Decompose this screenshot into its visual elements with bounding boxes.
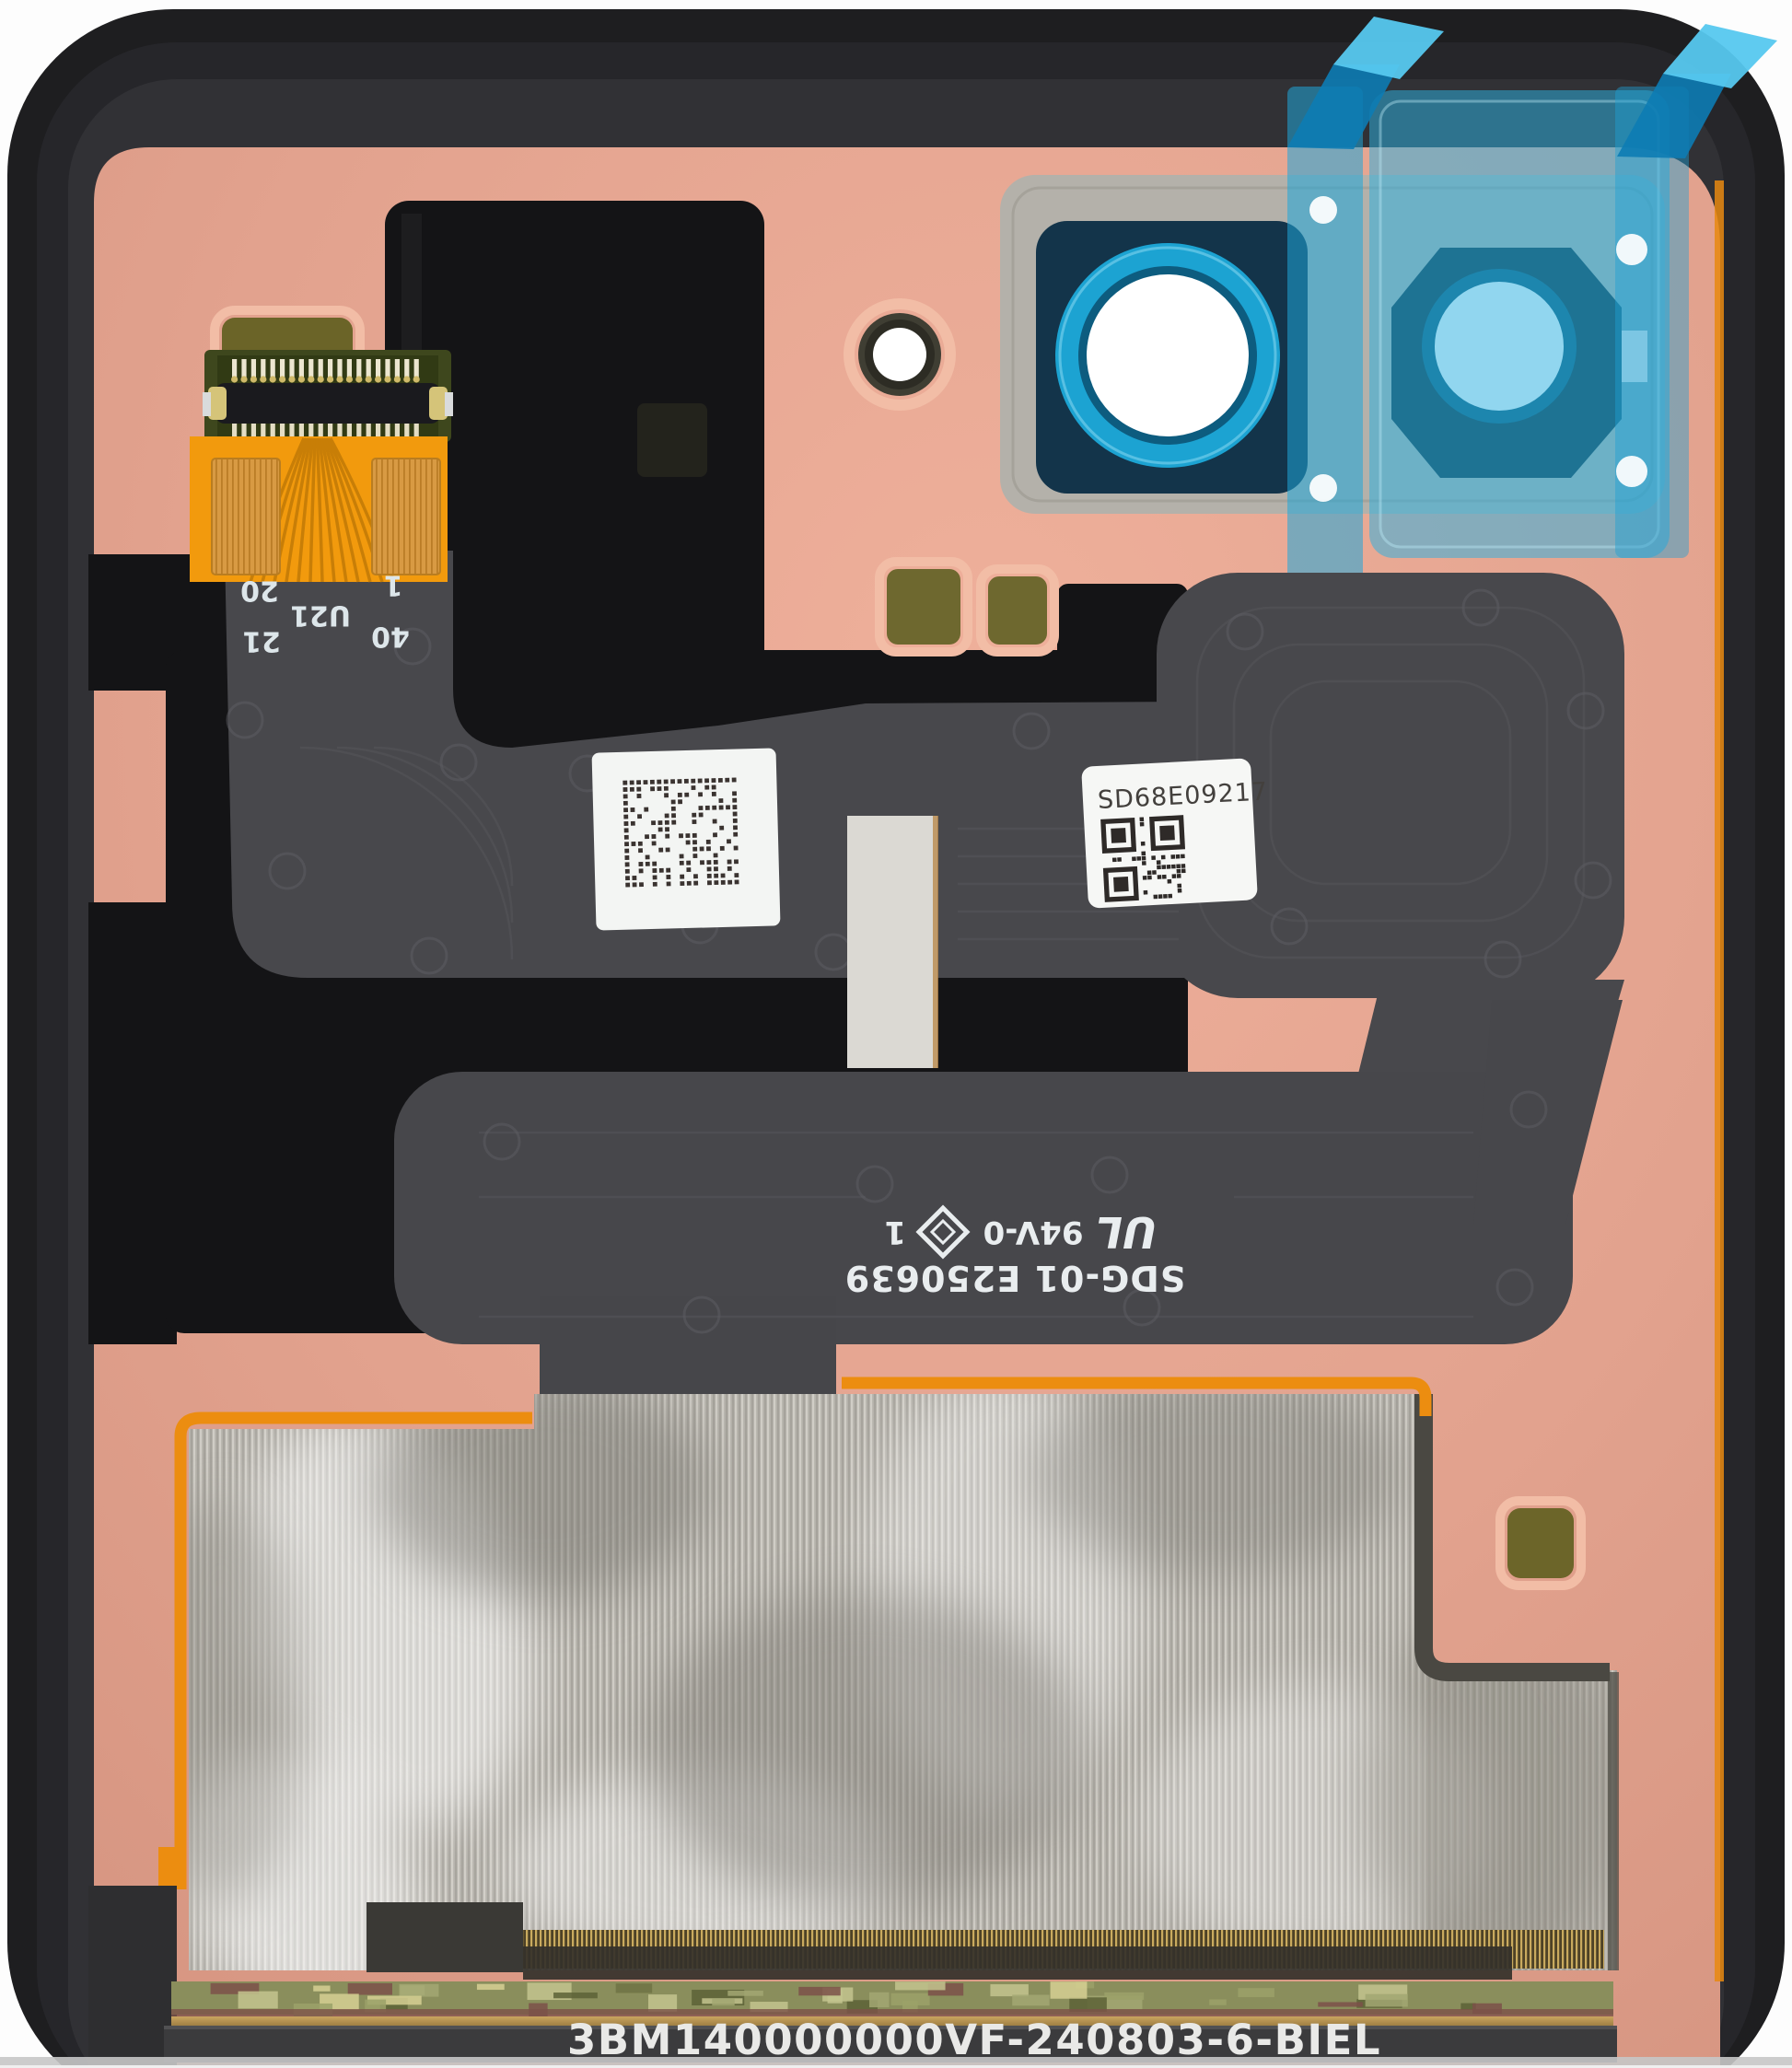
- dm-module: [684, 779, 689, 784]
- dm-module: [720, 846, 725, 851]
- dm-module: [685, 833, 690, 838]
- qr-module: [1132, 856, 1136, 861]
- mottle-chip: [798, 1987, 840, 1995]
- dm-module: [625, 862, 630, 866]
- dm-module: [650, 786, 655, 791]
- mottle-chip: [648, 1994, 677, 2012]
- qr-module: [1142, 856, 1146, 861]
- dm-module: [678, 799, 682, 804]
- dm-module: [623, 821, 628, 826]
- pin-bump: [413, 376, 420, 382]
- qr-module: [1117, 857, 1122, 862]
- qr-module: [1139, 817, 1144, 821]
- dm-module: [631, 821, 635, 826]
- pin-bump: [260, 376, 266, 382]
- fpc-edge-line: [1715, 180, 1724, 1981]
- pin-bump: [270, 376, 276, 382]
- qr-module: [1171, 865, 1176, 869]
- qr-module: [1181, 864, 1186, 868]
- qr-module: [1147, 876, 1152, 880]
- pin: [261, 359, 265, 378]
- flex-part-number: SDG-01 E250639: [844, 1258, 1186, 1298]
- dm-module: [678, 779, 682, 784]
- pin-bump: [327, 376, 333, 382]
- dm-module: [706, 860, 711, 865]
- qr-module: [1168, 879, 1172, 884]
- dm-module: [664, 779, 669, 784]
- dm-module: [636, 787, 641, 792]
- adhesive-pad: [981, 569, 1054, 652]
- dm-module: [653, 882, 657, 887]
- qr-module: [1157, 866, 1161, 870]
- dm-module: [650, 780, 655, 784]
- mottle-chip: [477, 1984, 505, 1990]
- pin: [347, 422, 352, 436]
- ul-logo-icon: UL: [1096, 1207, 1158, 1257]
- pin: [337, 359, 342, 378]
- dm-module: [636, 780, 641, 784]
- dm-module: [727, 866, 732, 871]
- dm-module: [691, 785, 695, 790]
- qr-module: [1147, 870, 1152, 875]
- pin: [385, 359, 390, 378]
- dm-module: [630, 807, 634, 812]
- dm-module: [726, 805, 730, 809]
- adhesive-pad: [1500, 1501, 1581, 1586]
- dm-module: [664, 786, 669, 791]
- pin: [232, 359, 237, 378]
- qr-module: [1177, 884, 1181, 889]
- qr-module: [1142, 861, 1146, 866]
- dm-module: [732, 805, 737, 809]
- dm-module: [630, 780, 634, 784]
- mottle-chip: [553, 1992, 598, 1998]
- qr-module: [1172, 874, 1177, 878]
- qr-module: [1143, 876, 1147, 880]
- dm-module: [652, 862, 657, 866]
- pin: [251, 422, 256, 436]
- dm-module: [707, 880, 712, 885]
- dm-module: [698, 779, 703, 784]
- dm-module: [711, 778, 716, 783]
- qr-module: [1170, 854, 1175, 859]
- dm-module: [692, 813, 696, 818]
- pin: [251, 359, 256, 378]
- dm-module: [721, 874, 726, 878]
- dm-module: [638, 848, 643, 853]
- dm-module: [630, 787, 634, 792]
- mottle-chip: [313, 1986, 330, 1992]
- dm-module: [734, 859, 739, 864]
- pin: [271, 422, 275, 436]
- pin: [299, 422, 304, 436]
- dm-module: [680, 875, 684, 879]
- pin: [414, 359, 419, 378]
- qr-module: [1161, 855, 1166, 860]
- adhesive-pad: [879, 562, 968, 652]
- pin: [308, 422, 313, 436]
- dm-module: [671, 820, 676, 825]
- qr-module: [1176, 864, 1181, 868]
- dm-module: [692, 833, 697, 838]
- dm-module: [713, 819, 717, 824]
- pin-bump: [336, 376, 343, 382]
- dm-module: [658, 827, 663, 831]
- dm-module: [680, 861, 684, 866]
- pin: [385, 422, 390, 436]
- pin: [232, 422, 237, 436]
- pin: [289, 359, 294, 378]
- pin-label-40: 40: [371, 621, 410, 653]
- qr-module: [1177, 874, 1181, 878]
- photo-canvas: SD68E09217 SDG-01 E250639 UL 94V-0 1 20 …: [0, 0, 1792, 2068]
- pin: [319, 359, 323, 378]
- connector-socket: [215, 383, 440, 424]
- dm-module: [646, 854, 650, 859]
- dm-module: [667, 881, 671, 886]
- qr-module: [1168, 894, 1172, 899]
- mottle-chip: [727, 1991, 763, 1996]
- dm-module: [657, 780, 661, 784]
- dm-module: [625, 869, 630, 874]
- dm-module: [692, 840, 697, 844]
- mottle-chip: [1318, 2002, 1363, 2006]
- dm-module: [666, 875, 670, 879]
- dm-module: [732, 798, 737, 803]
- dm-module: [719, 826, 724, 831]
- dm-module: [679, 833, 683, 838]
- dm-module: [671, 813, 676, 818]
- driver-ic-strip: [171, 1981, 1613, 2019]
- dm-module: [652, 868, 657, 873]
- dm-module: [733, 812, 738, 817]
- dm-module: [665, 834, 669, 839]
- dm-module: [692, 819, 696, 824]
- dm-module: [704, 785, 709, 790]
- pin-bump: [298, 376, 305, 382]
- bonding-dark-strip: [523, 1946, 1512, 1980]
- qr-module: [1167, 865, 1171, 869]
- pin: [328, 422, 332, 436]
- component-designator: U21: [290, 599, 351, 632]
- dm-module: [700, 860, 704, 865]
- pin: [356, 359, 361, 378]
- film-strip-left: [1287, 87, 1363, 595]
- qr-module: [1178, 889, 1182, 893]
- dm-module: [645, 834, 649, 839]
- dm-module: [624, 842, 629, 846]
- dm-module: [664, 793, 669, 797]
- pin-bump: [346, 376, 353, 382]
- dm-module: [623, 815, 628, 819]
- mottle-chip: [348, 1983, 392, 1995]
- board-connector: [203, 350, 453, 442]
- pin: [280, 359, 285, 378]
- dm-module: [624, 835, 629, 840]
- dm-module: [700, 846, 704, 851]
- dm-module: [624, 855, 629, 860]
- dm-module: [671, 807, 676, 811]
- qr-module: [1141, 842, 1146, 846]
- dm-module: [637, 794, 642, 798]
- product-photo: SD68E09217 SDG-01 E250639 UL 94V-0 1 20 …: [0, 0, 1792, 2068]
- dm-module: [624, 849, 629, 854]
- dm-module: [646, 862, 650, 866]
- left-bottom-shadow: [88, 1886, 177, 2068]
- pin-bump: [366, 376, 372, 382]
- dm-module: [653, 875, 657, 879]
- pin: [367, 359, 371, 378]
- dm-module: [652, 841, 657, 845]
- flex-cable-orange: [190, 436, 448, 582]
- dm-module: [632, 876, 636, 880]
- cert-index: 1: [884, 1214, 906, 1250]
- dm-module: [734, 846, 739, 851]
- dm-module: [659, 868, 664, 873]
- dm-module: [624, 828, 629, 832]
- pin-bump: [318, 376, 324, 382]
- dm-module: [712, 806, 716, 810]
- dm-module: [727, 839, 731, 843]
- dm-module: [686, 867, 691, 872]
- qr-module: [1151, 855, 1156, 860]
- dm-module: [735, 880, 739, 885]
- dm-module: [666, 847, 670, 852]
- pin: [337, 422, 342, 436]
- pin-bump: [279, 376, 285, 382]
- camera-lens-main: [1036, 221, 1308, 494]
- dm-module: [718, 778, 723, 783]
- mottle-chip: [239, 1992, 278, 2009]
- mottle-chip: [1012, 1994, 1049, 2005]
- pin-bump: [288, 376, 295, 382]
- dm-module: [705, 806, 710, 810]
- dm-module: [714, 854, 718, 858]
- dm-module: [712, 792, 716, 796]
- dm-module: [658, 848, 663, 853]
- dm-module: [698, 792, 703, 796]
- dm-module: [651, 834, 656, 839]
- dm-module: [732, 778, 737, 783]
- qr-module: [1162, 875, 1167, 879]
- pin: [376, 422, 380, 436]
- dm-module: [714, 880, 718, 885]
- qr-module: [1153, 895, 1158, 900]
- pin: [299, 359, 304, 378]
- pin-bump: [403, 376, 410, 382]
- pin-bump: [250, 376, 257, 382]
- dm-module: [623, 794, 628, 798]
- dm-module: [657, 820, 662, 825]
- dm-module: [732, 791, 737, 796]
- mottle-chip: [712, 1998, 734, 2005]
- pin: [376, 359, 380, 378]
- mottle-chip: [616, 1983, 652, 1992]
- dm-module: [725, 778, 729, 783]
- qr-module: [1140, 822, 1145, 827]
- charcoal-pad: [367, 1902, 523, 1972]
- dm-module: [718, 798, 723, 803]
- dm-module: [651, 820, 656, 825]
- dm-module: [714, 860, 718, 865]
- qr-finder: [1159, 825, 1175, 841]
- qr-module: [1181, 854, 1185, 859]
- dm-module: [706, 840, 711, 844]
- dm-module: [713, 832, 717, 837]
- pin: [356, 422, 361, 436]
- dm-module: [639, 868, 644, 873]
- pin: [280, 422, 285, 436]
- pin: [347, 359, 352, 378]
- flammability-rating: 94V-0: [983, 1214, 1084, 1250]
- dm-module: [631, 842, 635, 846]
- dm-module: [644, 780, 648, 784]
- dm-module: [671, 799, 676, 804]
- serial-sticker: SD68E09217: [1081, 757, 1274, 908]
- dm-module: [686, 861, 691, 866]
- pin: [414, 422, 419, 436]
- dm-module: [638, 862, 643, 866]
- dm-module: [698, 806, 703, 810]
- qr-module: [1161, 865, 1166, 869]
- mottle-chip: [1104, 1992, 1144, 2000]
- dm-module: [639, 882, 644, 887]
- dm-module: [727, 880, 732, 885]
- dm-module: [704, 778, 709, 783]
- pin: [404, 359, 409, 378]
- dm-module: [707, 866, 712, 871]
- pad-under-film: [637, 403, 707, 477]
- pin: [308, 359, 313, 378]
- pin: [289, 422, 294, 436]
- dm-module: [644, 807, 648, 812]
- dm-module: [733, 832, 738, 837]
- mottle-chip: [869, 1992, 890, 2007]
- mottle-chip: [990, 1984, 1028, 1996]
- dm-module: [714, 866, 718, 871]
- dm-module: [680, 854, 684, 858]
- pin: [261, 422, 265, 436]
- pin-bump: [355, 376, 362, 382]
- qr-module: [1157, 860, 1161, 865]
- dm-module: [733, 819, 738, 823]
- dm-module: [623, 787, 628, 792]
- qr-module: [1141, 851, 1146, 855]
- pin: [404, 422, 409, 436]
- mottle-chip: [1366, 1994, 1408, 2007]
- dm-module: [625, 883, 630, 888]
- dm-module: [623, 801, 628, 806]
- dm-module: [712, 785, 716, 790]
- dm-module: [693, 881, 698, 886]
- mic-hole: [849, 304, 950, 405]
- pin-bump: [231, 376, 238, 382]
- pin: [241, 359, 246, 378]
- qr-module: [1163, 894, 1168, 899]
- dm-module: [666, 868, 670, 873]
- pin-bump: [384, 376, 390, 382]
- dm-module: [733, 825, 738, 830]
- dm-module: [623, 781, 627, 785]
- dm-module: [707, 874, 712, 878]
- pin: [395, 422, 400, 436]
- dm-module: [714, 874, 718, 878]
- pin: [367, 422, 371, 436]
- dm-module: [684, 793, 689, 797]
- thermal-pad-strip: [847, 816, 938, 1068]
- dm-module: [719, 806, 724, 810]
- qr-finder: [1113, 877, 1129, 892]
- pin: [319, 422, 323, 436]
- mottle-chip: [895, 1981, 946, 1990]
- qr-module: [1112, 857, 1117, 862]
- pin-label-1: 1: [384, 569, 403, 601]
- pin-label-20: 20: [240, 575, 279, 607]
- dm-module: [706, 846, 711, 851]
- dm-module: [670, 779, 675, 784]
- pin-bump: [375, 376, 381, 382]
- data-matrix-label: [592, 748, 781, 930]
- dm-module: [693, 874, 698, 878]
- qr-module: [1177, 869, 1181, 874]
- pin: [395, 359, 400, 378]
- qr-module: [1181, 868, 1186, 873]
- dm-module: [727, 860, 732, 865]
- dm-module: [680, 881, 684, 886]
- dm-module: [687, 881, 692, 886]
- qr-module: [1158, 894, 1163, 899]
- pin-bump: [394, 376, 401, 382]
- dm-module: [734, 873, 739, 877]
- dm-module: [625, 876, 630, 880]
- qr-module: [1176, 854, 1181, 859]
- pin: [241, 422, 246, 436]
- dm-module: [692, 854, 697, 858]
- pin-bump: [240, 376, 247, 382]
- dm-module: [633, 882, 637, 887]
- dm-module: [699, 813, 704, 818]
- mottle-chip: [1051, 1981, 1088, 1999]
- pin-label-21: 21: [242, 625, 281, 657]
- dm-module: [678, 793, 682, 797]
- qr-module: [1158, 875, 1162, 879]
- dm-module: [665, 820, 669, 825]
- qr-module: [1136, 856, 1141, 861]
- dm-module: [638, 842, 643, 846]
- mottle-chip: [1238, 1988, 1274, 1997]
- pin-bump: [308, 376, 314, 382]
- qr-module: [1144, 890, 1148, 895]
- dm-module: [692, 847, 697, 852]
- qr-module: [1152, 870, 1157, 875]
- dm-module: [637, 814, 642, 819]
- pin: [328, 359, 332, 378]
- dm-module: [665, 827, 669, 831]
- dm-module: [665, 813, 669, 818]
- dm-module: [657, 786, 662, 791]
- mottle-chip: [399, 1984, 438, 1997]
- pin: [271, 359, 275, 378]
- dm-module: [686, 840, 691, 844]
- qr-finder: [1111, 828, 1126, 843]
- dm-module: [721, 880, 726, 885]
- dm-module: [691, 779, 695, 784]
- mottle-chip: [1209, 1999, 1227, 2004]
- dm-module: [623, 807, 628, 812]
